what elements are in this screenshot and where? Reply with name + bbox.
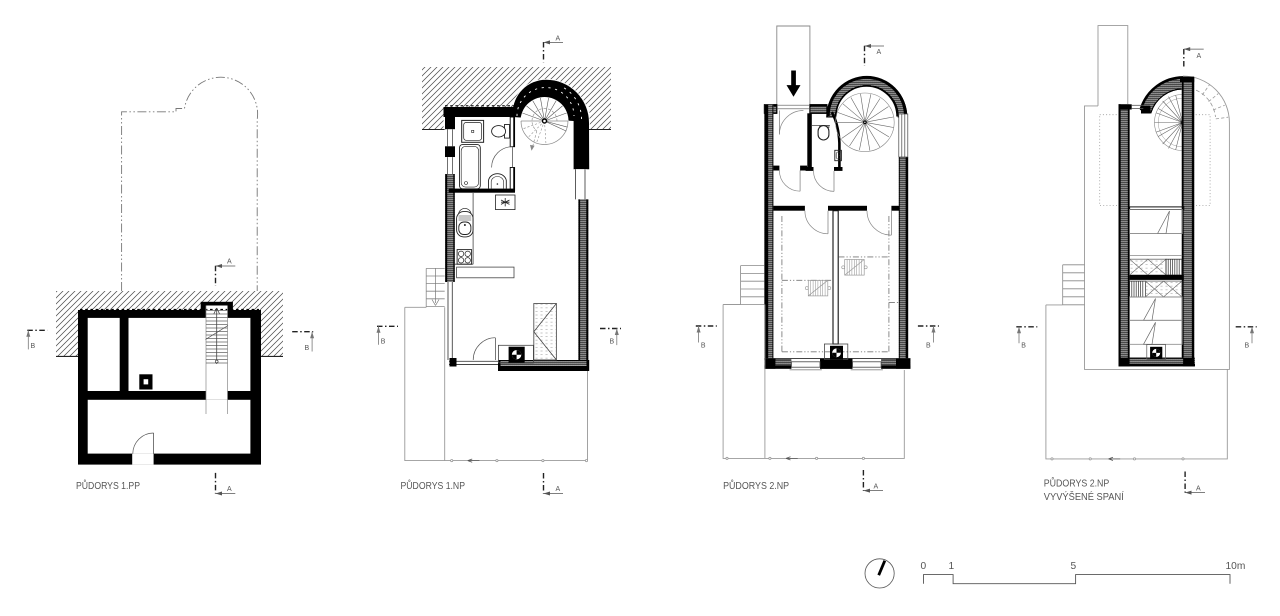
svg-text:A: A <box>227 259 232 266</box>
svg-text:B: B <box>31 343 36 350</box>
svg-text:VYVÝŠENÉ SPANÍ: VYVÝŠENÉ SPANÍ <box>1044 490 1124 503</box>
svg-text:A: A <box>556 486 561 493</box>
svg-text:B: B <box>305 345 310 352</box>
svg-text:PŮDORYS 1.NP: PŮDORYS 1.NP <box>401 479 466 492</box>
svg-text:B: B <box>1245 343 1250 350</box>
svg-text:B: B <box>610 339 615 346</box>
svg-text:B: B <box>381 339 386 346</box>
svg-text:A: A <box>874 484 879 491</box>
svg-text:PŮDORYS 2.NP: PŮDORYS 2.NP <box>723 479 789 492</box>
svg-text:B: B <box>926 343 931 350</box>
svg-text:B: B <box>1021 343 1026 350</box>
svg-text:0: 0 <box>921 561 927 572</box>
svg-text:A: A <box>556 36 561 43</box>
svg-text:1: 1 <box>949 561 955 572</box>
svg-text:5: 5 <box>1071 561 1077 572</box>
svg-text:B: B <box>701 343 706 350</box>
svg-text:A: A <box>1197 53 1202 60</box>
svg-text:A: A <box>227 486 232 493</box>
svg-text:PŮDORYS 1.PP: PŮDORYS 1.PP <box>76 479 140 492</box>
svg-text:A: A <box>1196 486 1201 493</box>
svg-text:A: A <box>877 49 882 56</box>
svg-text:PŮDORYS 2.NP: PŮDORYS 2.NP <box>1044 476 1110 489</box>
svg-text:10m: 10m <box>1226 561 1246 572</box>
